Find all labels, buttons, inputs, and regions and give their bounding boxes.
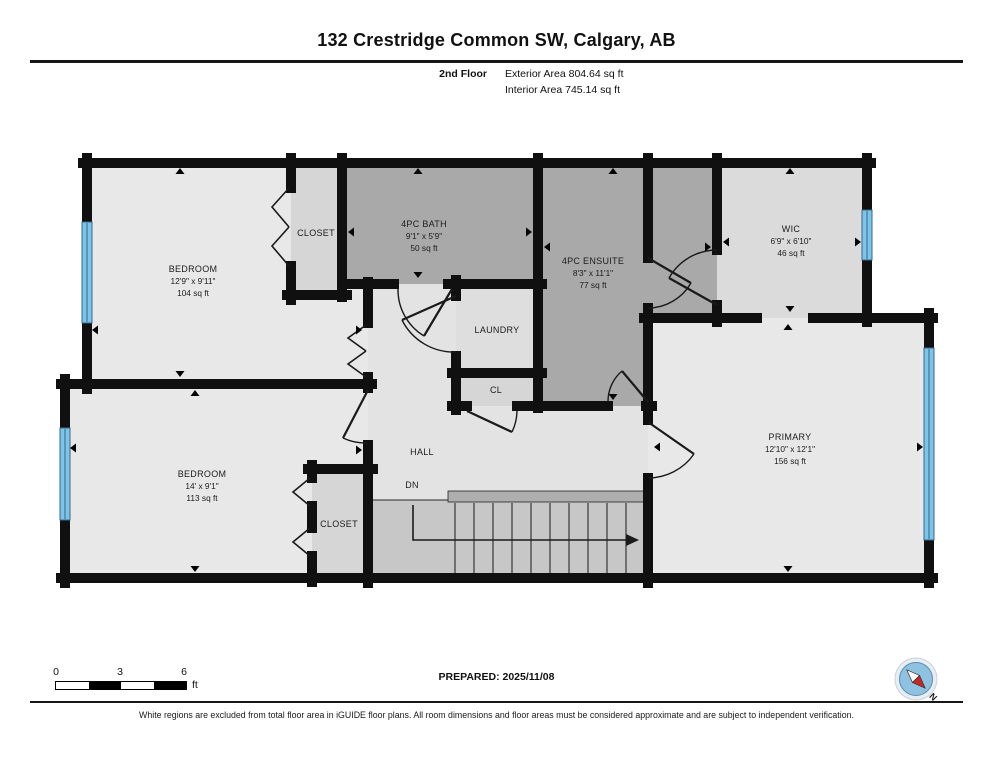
staircase bbox=[373, 491, 646, 575]
hall-label: HALL bbox=[410, 447, 434, 457]
bath-area: 50 sq ft bbox=[410, 243, 438, 253]
bedroom-lower-label: BEDROOM bbox=[178, 469, 227, 479]
primary-area: 156 sq ft bbox=[774, 456, 807, 466]
primary-label: PRIMARY bbox=[769, 432, 812, 442]
wic-dims: 6'9" x 6'10" bbox=[771, 236, 812, 246]
scale-segment bbox=[89, 682, 122, 689]
bath-dims: 9'1" x 5'9" bbox=[406, 231, 442, 241]
ensuite-area: 77 sq ft bbox=[579, 280, 607, 290]
closet-lower-label: CLOSET bbox=[320, 519, 358, 529]
window-wic bbox=[862, 210, 872, 260]
laundry-label: LAUNDRY bbox=[475, 325, 520, 335]
bedroom-lower-area: 113 sq ft bbox=[186, 493, 218, 503]
ensuite-label: 4PC ENSUITE bbox=[562, 256, 624, 266]
footer-divider bbox=[30, 701, 963, 703]
scale-segment bbox=[121, 682, 154, 689]
bedroom-top-dims: 12'9" x 9'11" bbox=[171, 276, 216, 286]
stairs-dn-label: DN bbox=[405, 480, 419, 490]
disclaimer-text: White regions are excluded from total fl… bbox=[0, 710, 993, 720]
bath-label: 4PC BATH bbox=[401, 219, 447, 229]
primary-dims: 12'10" x 12'1" bbox=[765, 444, 815, 454]
bedroom-lower-dims: 14' x 9'1" bbox=[185, 481, 218, 491]
window-bedroom-top bbox=[82, 222, 92, 323]
window-bedroom-lower bbox=[60, 428, 70, 520]
floorplan-drawing: BEDROOM 12'9" x 9'11" 104 sq ft CLOSET 4… bbox=[0, 0, 993, 768]
scale-segment bbox=[154, 682, 187, 689]
floorplan-page: 132 Crestridge Common SW, Calgary, AB 2n… bbox=[0, 0, 993, 768]
window-primary bbox=[924, 348, 934, 540]
prepared-date: PREPARED: 2025/11/08 bbox=[0, 671, 993, 683]
cl-label: CL bbox=[490, 385, 502, 395]
ensuite-dims: 8'3" x 11'1" bbox=[573, 268, 613, 278]
closet-top-label: CLOSET bbox=[297, 228, 335, 238]
stair-landing bbox=[448, 491, 646, 502]
wic-label: WIC bbox=[782, 224, 801, 234]
scale-segment bbox=[56, 682, 89, 689]
bedroom-top-area: 104 sq ft bbox=[177, 288, 210, 298]
wic-area: 46 sq ft bbox=[777, 248, 805, 258]
bedroom-top-label: BEDROOM bbox=[169, 264, 218, 274]
